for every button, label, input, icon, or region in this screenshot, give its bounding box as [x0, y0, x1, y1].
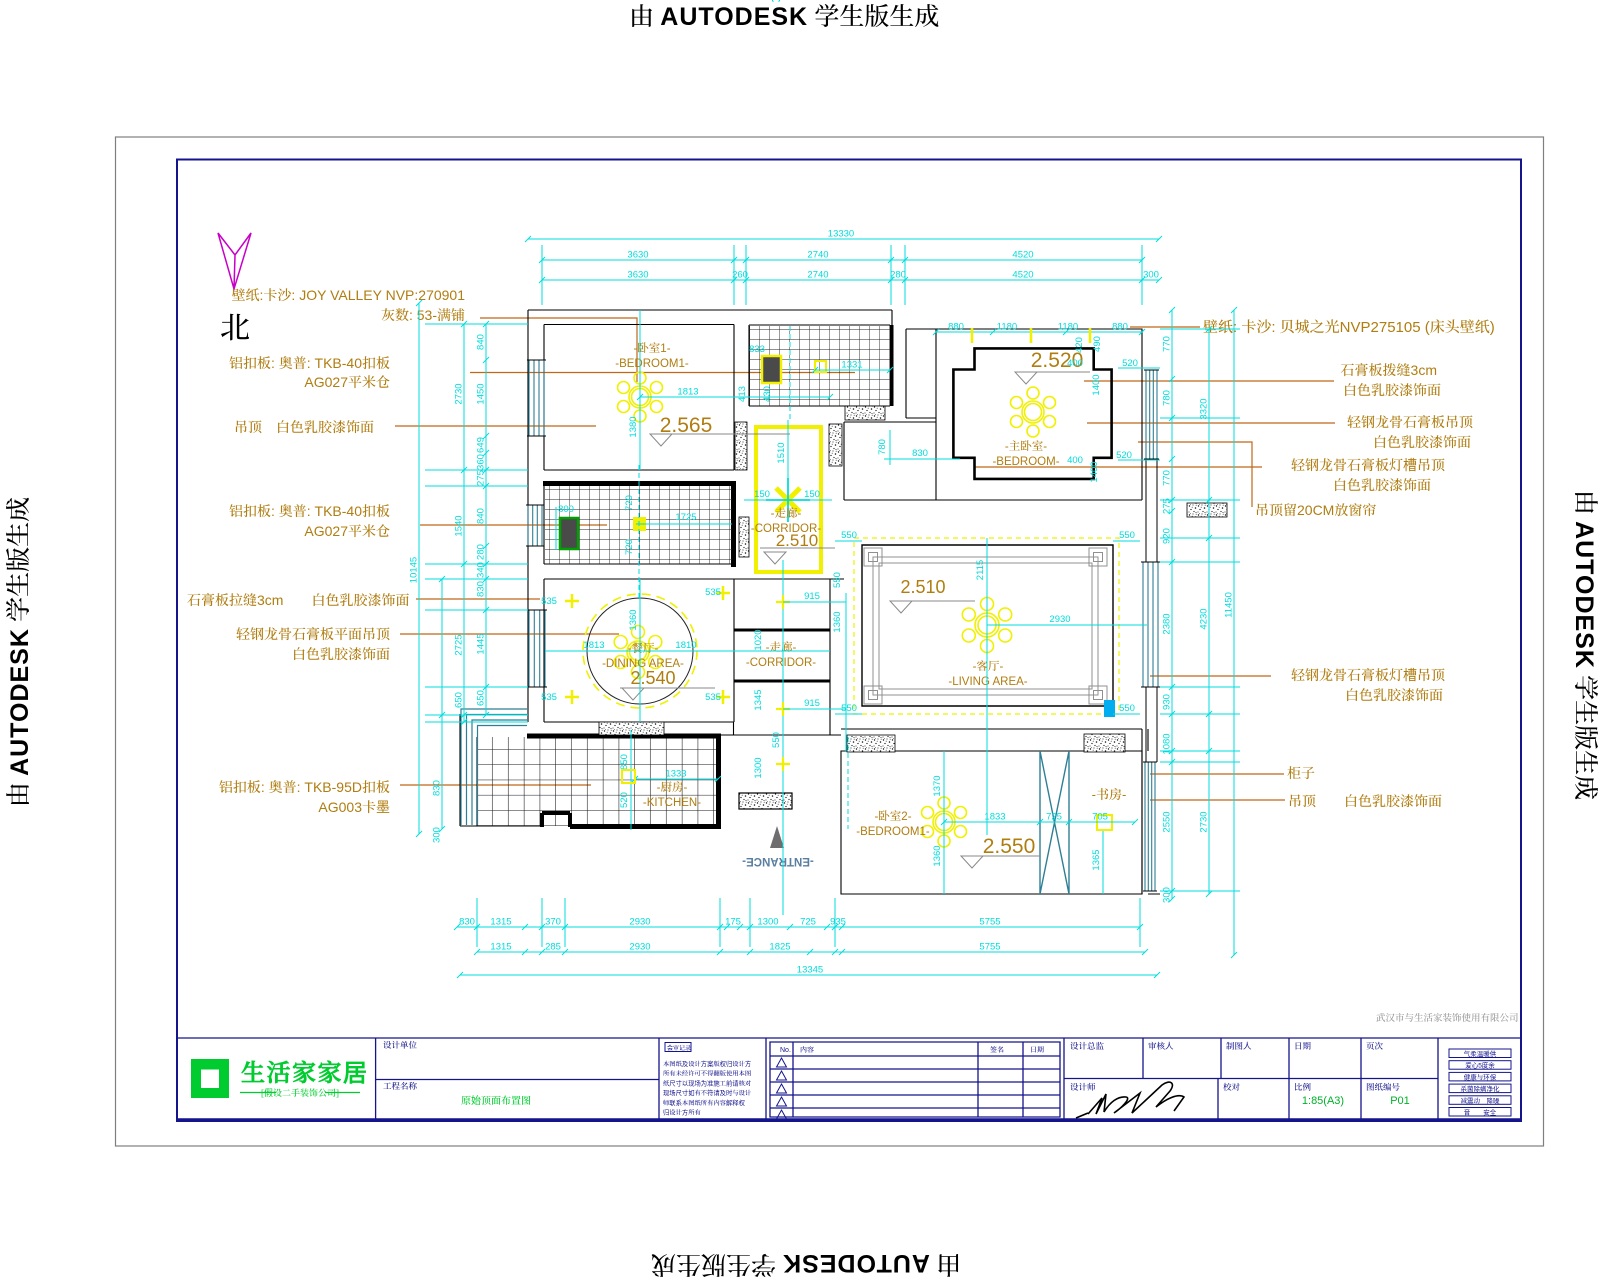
svg-text:-主卧室-: -主卧室-	[1005, 438, 1047, 454]
svg-text:铝扣板: 奥普: TKB-40扣板: 铝扣板: 奥普: TKB-40扣板	[229, 353, 390, 373]
svg-text:535: 535	[705, 587, 721, 598]
svg-text:由 AUTODESK 学生版生成: 由 AUTODESK 学生版生成	[629, 0, 939, 33]
svg-text:915: 915	[804, 591, 820, 602]
svg-text:5755: 5755	[979, 942, 1000, 953]
svg-text:550: 550	[832, 572, 843, 588]
svg-text:减震动 降噪: 减震动 降噪	[1461, 1096, 1501, 1105]
svg-text:2740: 2740	[807, 270, 828, 281]
svg-text:1725: 1725	[675, 512, 696, 523]
svg-text:铝扣板: 奥普: TKB-40扣板: 铝扣板: 奥普: TKB-40扣板	[229, 501, 390, 521]
svg-text:880: 880	[948, 322, 964, 333]
svg-text:650: 650	[454, 692, 465, 708]
svg-text:柜子: 柜子	[1287, 763, 1315, 783]
svg-text:原始顶面布置图: 原始顶面布置图	[461, 1092, 531, 1107]
svg-text:370: 370	[545, 917, 561, 928]
svg-text:2740: 2740	[807, 250, 828, 261]
svg-text:吊顶 白色乳胶漆饰面: 吊顶 白色乳胶漆饰面	[234, 417, 374, 437]
svg-text:师联系本图纸所有内容解释权: 师联系本图纸所有内容解释权	[663, 1098, 746, 1107]
svg-text:[假设二手装饰公司]: [假设二手装饰公司]	[261, 1086, 339, 1099]
svg-text:所有未经许可不得翻版使用本图: 所有未经许可不得翻版使用本图	[663, 1069, 751, 1078]
svg-text:780: 780	[877, 439, 888, 455]
svg-text:日期: 日期	[1294, 1040, 1312, 1052]
svg-text:915: 915	[804, 698, 820, 709]
svg-text:气柔温暖供: 气柔温暖供	[1464, 1049, 1497, 1058]
svg-text:535: 535	[705, 692, 721, 703]
svg-text:2.540: 2.540	[630, 668, 675, 688]
svg-text:550: 550	[771, 732, 782, 748]
svg-text:280: 280	[476, 544, 487, 560]
svg-text:175: 175	[725, 917, 741, 928]
svg-text:石膏板拉缝3cm 白色乳胶漆饰面: 石膏板拉缝3cm 白色乳胶漆饰面	[187, 590, 409, 610]
svg-text:2730: 2730	[454, 383, 465, 404]
svg-text:5755: 5755	[979, 917, 1000, 928]
svg-text:白色乳胶漆饰面: 白色乳胶漆饰面	[1333, 475, 1431, 495]
svg-text:工程名称: 工程名称	[383, 1080, 418, 1092]
svg-text:由 AUTODESK 学生版生成: 由 AUTODESK 学生版生成	[651, 1248, 961, 1280]
svg-text:770: 770	[1162, 470, 1173, 486]
svg-text:-BEDROOM1-: -BEDROOM1-	[856, 823, 930, 839]
svg-text:1400: 1400	[1089, 461, 1100, 482]
svg-text:1331: 1331	[841, 360, 862, 371]
svg-text:550: 550	[1119, 703, 1135, 714]
svg-text:2.510: 2.510	[776, 531, 819, 550]
svg-text:2380: 2380	[1162, 613, 1173, 634]
svg-text:490: 490	[1092, 336, 1103, 352]
svg-text:550: 550	[841, 530, 857, 541]
svg-text:1360: 1360	[832, 611, 843, 632]
svg-text:石膏板拨缝3cm: 石膏板拨缝3cm	[1341, 360, 1437, 380]
svg-text:设计单位: 设计单位	[383, 1039, 418, 1051]
svg-text:生活家家居: 生活家家居	[241, 1053, 369, 1088]
svg-text:550: 550	[841, 703, 857, 714]
svg-text:P01: P01	[1390, 1095, 1410, 1107]
svg-text:2930: 2930	[1049, 614, 1070, 625]
svg-text:920: 920	[1162, 528, 1173, 544]
svg-text:1400: 1400	[1091, 374, 1102, 395]
svg-text:-KITCHEN-: -KITCHEN-	[643, 794, 701, 810]
svg-text:705: 705	[1092, 812, 1108, 823]
svg-text:白色乳胶漆饰面: 白色乳胶漆饰面	[1373, 432, 1471, 452]
svg-text:1813: 1813	[583, 640, 604, 651]
svg-text:1300: 1300	[753, 757, 764, 778]
svg-text:10145: 10145	[409, 557, 420, 583]
svg-text:灰数: 53-满铺: 灰数: 53-满铺	[381, 305, 465, 325]
svg-text:1345: 1345	[753, 689, 764, 710]
svg-text:签名: 签名	[990, 1045, 1004, 1055]
svg-text:2.510: 2.510	[900, 577, 945, 597]
svg-text:275: 275	[476, 470, 487, 486]
svg-text:-卧室1-: -卧室1-	[633, 340, 670, 356]
svg-text:830: 830	[459, 917, 475, 928]
svg-text:轻钢龙骨石膏板灯槽吊顶: 轻钢龙骨石膏板灯槽吊顶	[1291, 455, 1445, 475]
svg-text:内容: 内容	[800, 1045, 814, 1055]
svg-text:2115: 2115	[975, 560, 986, 580]
svg-text:2930: 2930	[629, 942, 650, 953]
svg-text:1380: 1380	[628, 416, 639, 437]
svg-text:吊顶留20CM放窗帘: 吊顶留20CM放窗帘	[1255, 500, 1376, 520]
svg-text:280: 280	[890, 270, 906, 281]
svg-text:720: 720	[624, 495, 635, 511]
svg-text:校对: 校对	[1223, 1081, 1241, 1093]
svg-text:4230: 4230	[1199, 608, 1210, 629]
svg-text:北: 北	[220, 303, 250, 347]
svg-text:840: 840	[476, 334, 487, 350]
svg-text:铝扣板: 奥普: TKB-95D扣板: 铝扣板: 奥普: TKB-95D扣板	[219, 777, 390, 797]
svg-text:830: 830	[912, 448, 928, 459]
svg-text:2.550: 2.550	[983, 835, 1036, 858]
svg-text:纸尺寸以现场为准施工前请核对: 纸尺寸以现场为准施工前请核对	[663, 1078, 752, 1087]
svg-text:1020: 1020	[753, 629, 764, 650]
svg-text:会审记录: 会审记录	[667, 1043, 691, 1052]
svg-text:图纸编号: 图纸编号	[1366, 1081, 1401, 1093]
svg-text:-客厅-: -客厅-	[973, 658, 1004, 674]
svg-text:现场尺寸如有不符请及时与设计: 现场尺寸如有不符请及时与设计	[663, 1088, 752, 1097]
svg-text:1180: 1180	[1058, 322, 1078, 333]
svg-text:壁纸: 卡沙: 贝城之光NVP275105 (床头壁纸): 壁纸: 卡沙: 贝城之光NVP275105 (床头壁纸)	[1203, 316, 1495, 337]
svg-text:880: 880	[1112, 322, 1128, 333]
svg-text:壁纸:卡沙: JOY VALLEY NVP:270901: 壁纸:卡沙: JOY VALLEY NVP:270901	[232, 285, 466, 305]
svg-text:833: 833	[749, 344, 765, 355]
svg-text:13330: 13330	[828, 229, 854, 240]
svg-text:设计总监: 设计总监	[1070, 1040, 1105, 1052]
svg-text:935: 935	[830, 917, 846, 928]
svg-text:430: 430	[762, 386, 773, 402]
svg-text:制图人: 制图人	[1226, 1040, 1252, 1052]
svg-text:285: 285	[545, 942, 561, 953]
svg-text:白色乳胶漆饰面: 白色乳胶漆饰面	[292, 644, 390, 664]
svg-text:300: 300	[432, 827, 443, 843]
svg-text:150: 150	[754, 489, 770, 500]
svg-text:3630: 3630	[627, 270, 648, 281]
svg-text:白色乳胶漆饰面: 白色乳胶漆饰面	[1345, 685, 1443, 705]
svg-text:健康与环保: 健康与环保	[1464, 1072, 1497, 1081]
svg-text:2930: 2930	[629, 917, 650, 928]
svg-text:{lt}: {lt}	[771, 0, 781, 2]
svg-text:爱心5度余: 爱心5度余	[1465, 1061, 1495, 1070]
svg-text:审核人: 审核人	[1148, 1040, 1174, 1052]
svg-text:720: 720	[624, 539, 635, 555]
svg-text:-餐厅-: -餐厅-	[628, 640, 659, 656]
svg-text:4520: 4520	[1012, 250, 1033, 261]
svg-text:11450: 11450	[1224, 592, 1235, 618]
svg-text:1315: 1315	[490, 942, 511, 953]
svg-text:-厨房-: -厨房-	[657, 779, 688, 795]
svg-text:-ENTRANCE-: -ENTRANCE-	[742, 855, 814, 867]
svg-text:1:85(A3): 1:85(A3)	[1302, 1095, 1344, 1107]
svg-text:1300: 1300	[757, 917, 778, 928]
svg-text:1180: 1180	[997, 322, 1017, 333]
svg-text:3320: 3320	[1199, 398, 1210, 419]
svg-text:1540: 1540	[454, 515, 465, 536]
svg-text:2550: 2550	[1162, 811, 1173, 832]
svg-text:由 AUTODESK 学生版生成: 由 AUTODESK 学生版生成	[0, 497, 35, 807]
svg-text:比例: 比例	[1294, 1081, 1312, 1093]
svg-text:550: 550	[1119, 530, 1135, 541]
svg-text:-卧室2-: -卧室2-	[874, 808, 911, 824]
svg-text:日期: 日期	[1030, 1045, 1044, 1055]
svg-text:-走廊-: -走廊-	[771, 505, 802, 521]
svg-text:-CORRIDOR-: -CORRIDOR-	[746, 654, 816, 670]
svg-text:No.: No.	[780, 1045, 791, 1055]
svg-text:360: 360	[476, 454, 487, 470]
svg-text:300: 300	[1143, 270, 1159, 281]
svg-text:轻钢龙骨石膏板灯槽吊顶: 轻钢龙骨石膏板灯槽吊顶	[1291, 665, 1445, 685]
svg-text:-BEDROOM-: -BEDROOM-	[992, 453, 1059, 469]
svg-text:850: 850	[619, 754, 630, 770]
svg-text:780: 780	[1162, 390, 1173, 406]
svg-text:420: 420	[1074, 337, 1085, 353]
svg-text:649: 649	[476, 437, 487, 453]
svg-text:页次: 页次	[1366, 1040, 1384, 1052]
svg-text:1813: 1813	[677, 387, 698, 398]
svg-text:AG027平米仓: AG027平米仓	[304, 372, 390, 392]
svg-text:-LIVING AREA-: -LIVING AREA-	[948, 673, 1027, 689]
svg-text:400: 400	[1067, 358, 1083, 369]
svg-text:-走廊-: -走廊-	[766, 639, 797, 655]
svg-text:轻钢龙骨石膏板吊顶: 轻钢龙骨石膏板吊顶	[1347, 412, 1473, 432]
svg-text:1450: 1450	[476, 383, 487, 404]
svg-text:1360: 1360	[932, 845, 943, 866]
svg-text:1333: 1333	[665, 769, 686, 780]
svg-text:1445: 1445	[476, 633, 487, 654]
svg-text:520: 520	[619, 792, 630, 808]
svg-text:1360: 1360	[628, 609, 639, 630]
svg-text:吊顶 白色乳胶漆饰面: 吊顶 白色乳胶漆饰面	[1288, 791, 1442, 811]
svg-text:AG003卡墨: AG003卡墨	[318, 797, 390, 817]
svg-text:1370: 1370	[932, 775, 943, 796]
svg-text:本图纸及设计方案版权归设计方: 本图纸及设计方案版权归设计方	[663, 1059, 751, 1068]
svg-text:AG027平米仓: AG027平米仓	[304, 521, 390, 541]
svg-text:设计师: 设计师	[1070, 1081, 1096, 1093]
svg-text:1833: 1833	[984, 812, 1005, 823]
svg-text:白色乳胶漆饰面: 白色乳胶漆饰面	[1343, 380, 1441, 400]
svg-text:1510: 1510	[776, 442, 787, 463]
svg-text:1810: 1810	[675, 640, 696, 651]
svg-text:520: 520	[1122, 358, 1138, 369]
svg-text:400: 400	[1067, 455, 1083, 466]
svg-text:音 安全: 音 安全	[1464, 1108, 1497, 1117]
svg-text:650: 650	[476, 690, 487, 706]
svg-text:武汉市与生活家装饰使用有限公司: 武汉市与生活家装饰使用有限公司	[1376, 1010, 1519, 1024]
svg-text:840: 840	[476, 508, 487, 524]
svg-text:535: 535	[541, 596, 557, 607]
svg-text:830: 830	[476, 581, 487, 597]
svg-text:归设计方所有: 归设计方所有	[663, 1108, 701, 1117]
svg-text:4520: 4520	[1012, 270, 1033, 281]
svg-text:1315: 1315	[490, 917, 511, 928]
svg-text:725: 725	[800, 917, 816, 928]
svg-text:520: 520	[1116, 450, 1132, 461]
svg-text:413: 413	[737, 386, 748, 402]
svg-text:770: 770	[1162, 336, 1173, 352]
svg-text:3630: 3630	[627, 250, 648, 261]
svg-text:300: 300	[1162, 887, 1173, 903]
svg-text:535: 535	[541, 692, 557, 703]
svg-text:1365: 1365	[1091, 849, 1102, 870]
svg-text:由 AUTODESK 学生版生成: 由 AUTODESK 学生版生成	[1569, 490, 1600, 800]
svg-text:-书房-: -书房-	[1092, 784, 1127, 803]
svg-text:-BEDROOM1-: -BEDROOM1-	[615, 355, 689, 371]
svg-text:725: 725	[1046, 812, 1062, 823]
svg-text:13345: 13345	[797, 965, 823, 976]
svg-text:2725: 2725	[454, 634, 465, 655]
svg-text:杀菌除螨净化: 杀菌除螨净化	[1461, 1084, 1501, 1093]
svg-text:150: 150	[804, 489, 820, 500]
svg-text:1825: 1825	[769, 942, 790, 953]
svg-text:930: 930	[1162, 694, 1173, 710]
svg-text:2730: 2730	[1199, 811, 1210, 832]
svg-text:830: 830	[432, 780, 443, 796]
svg-text:轻钢龙骨石膏板平面吊顶: 轻钢龙骨石膏板平面吊顶	[236, 624, 390, 644]
svg-text:800: 800	[558, 504, 574, 515]
